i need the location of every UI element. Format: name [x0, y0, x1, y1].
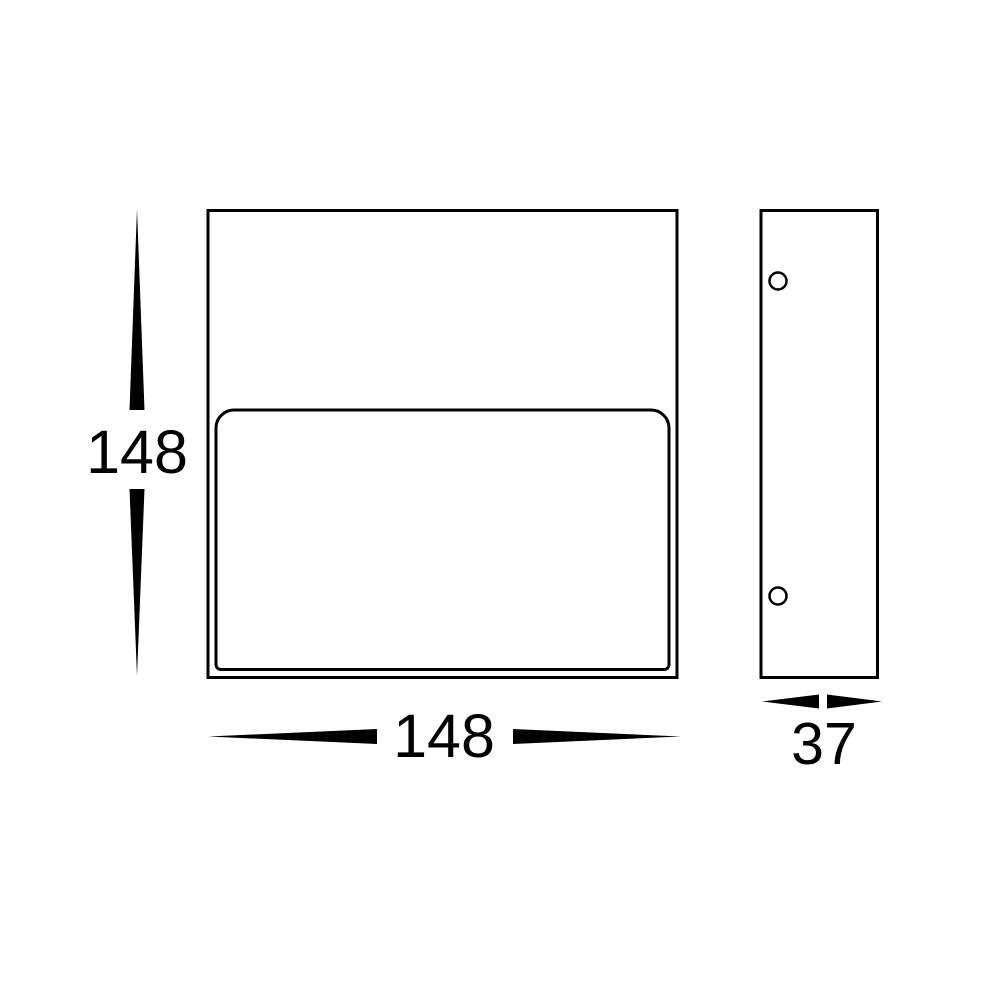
front-view-outline [208, 211, 677, 678]
depth-dimension-arrow-left-icon [762, 695, 819, 709]
drawing-canvas: 148 148 37 [0, 0, 1000, 1000]
height-dimension-arrow-up-icon [130, 209, 145, 410]
mounting-hole-top-icon [770, 273, 787, 290]
height-dimension-arrow-down-icon [130, 489, 145, 676]
width-dimension-arrow-right-icon [513, 729, 681, 744]
depth-dimension-label: 37 [791, 711, 857, 777]
dimension-group: 148 148 37 [86, 209, 882, 777]
dimension-drawing: 148 148 37 [0, 0, 1000, 1000]
height-dimension-label: 148 [86, 418, 188, 486]
width-dimension-label: 148 [393, 702, 495, 770]
width-dimension-arrow-left-icon [208, 729, 377, 744]
mounting-hole-bottom-icon [770, 588, 787, 605]
depth-dimension-arrow-right-icon [827, 695, 882, 709]
front-view-panel [216, 410, 669, 670]
side-view-outline [761, 211, 878, 678]
outline-group [208, 211, 878, 678]
